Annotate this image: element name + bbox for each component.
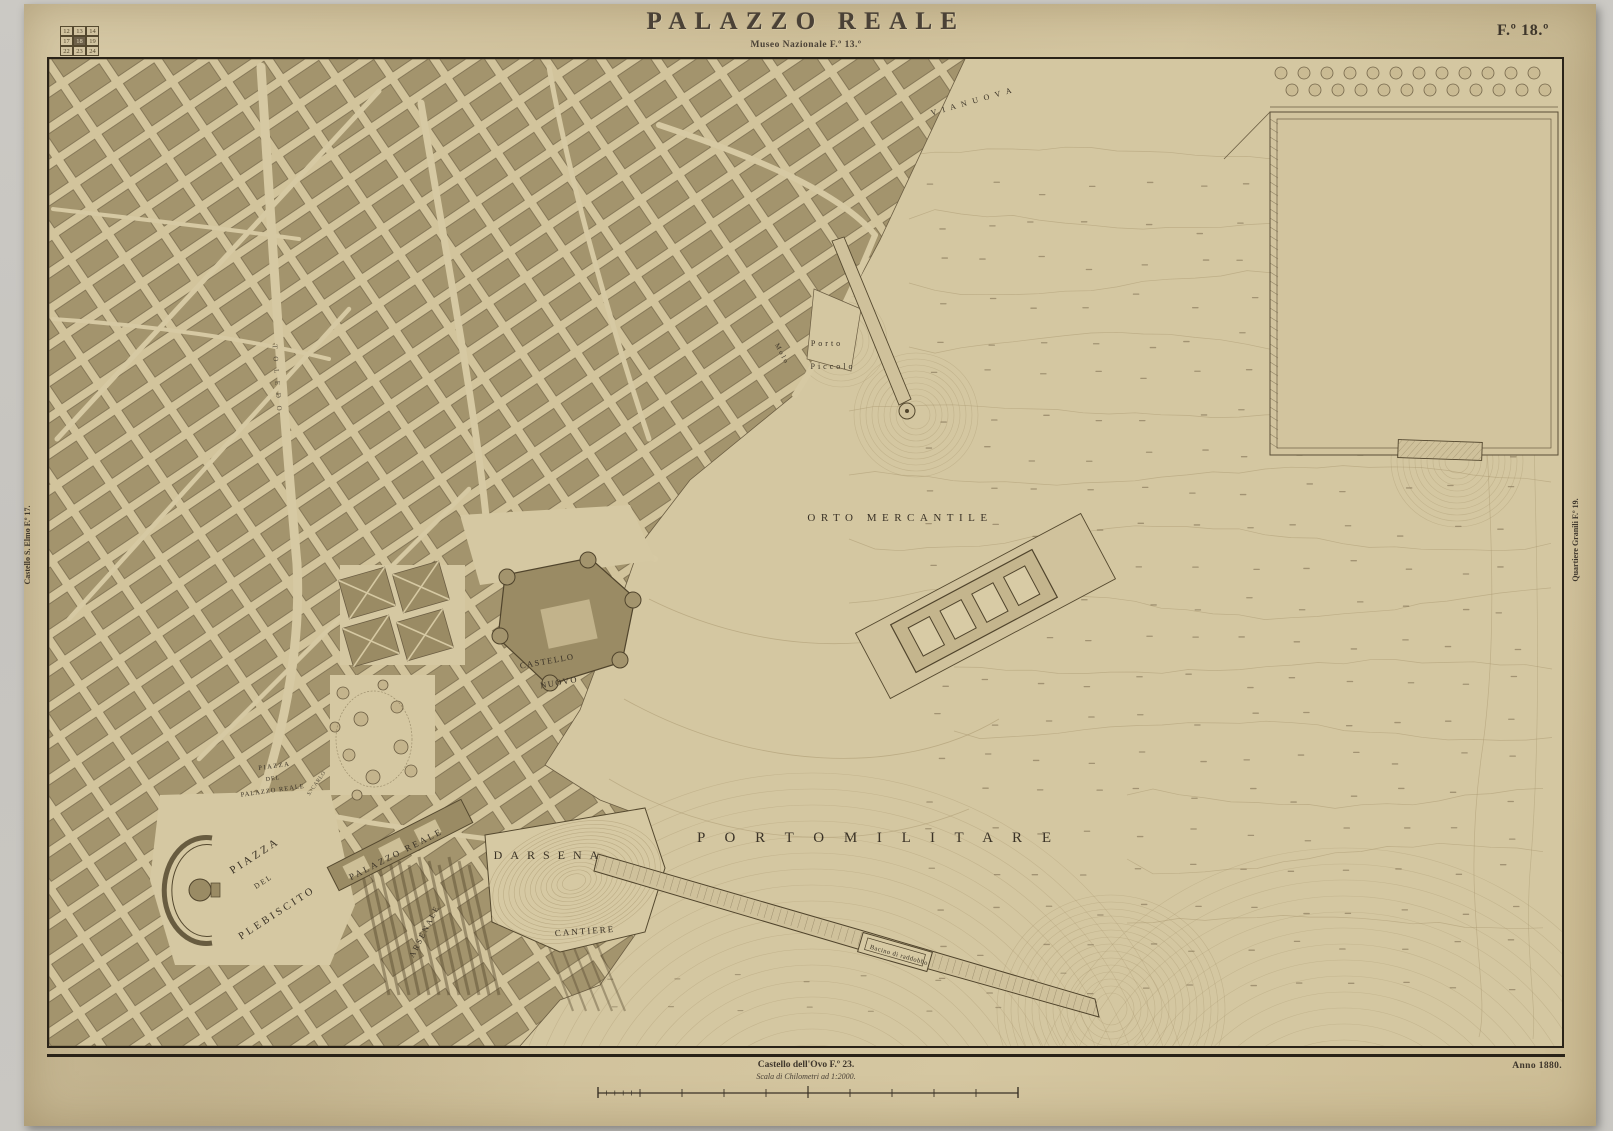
year-note: Anno 1880. xyxy=(1442,1061,1562,1071)
sheet-index-grid: 12 13 14 17 18 19 22 23 24 xyxy=(60,26,99,56)
granili-quarter xyxy=(1224,67,1558,455)
sheet-number: F.º 18.º xyxy=(1478,22,1568,40)
label-orto-mercantile: ORTO MERCANTILE xyxy=(807,512,992,524)
adjacent-sheet-top: Museo Nazionale F.º 13.º xyxy=(606,40,1006,50)
san-francesco-church xyxy=(189,879,211,901)
right-jetty xyxy=(1398,440,1483,461)
index-cell: 12 xyxy=(60,26,73,36)
adjacent-sheet-bottom: Castello dell'Ovo F.º 23. xyxy=(606,1060,1006,1070)
index-cell: 23 xyxy=(73,46,86,56)
index-cell: 19 xyxy=(86,36,99,46)
index-cell: 17 xyxy=(60,36,73,46)
scale-bar xyxy=(596,1085,1020,1099)
scanned-map-photo: 12 13 14 17 18 19 22 23 24 PALAZZO REALE… xyxy=(0,0,1613,1131)
adjacent-sheet-right: Quartiere Granili F.º 19. xyxy=(1571,455,1585,625)
index-cell: 14 xyxy=(86,26,99,36)
index-cell: 22 xyxy=(60,46,73,56)
label-piccolo: Piccolo xyxy=(811,362,856,371)
map-title: PALAZZO REALE xyxy=(606,8,1006,36)
map-drawing: ORTO MERCANTILE P O R T O M I L I T A R … xyxy=(49,59,1562,1046)
label-darsena: DARSENA xyxy=(494,848,607,862)
index-cell-current: 18 xyxy=(73,36,86,46)
label-porto: Porto xyxy=(811,339,843,348)
label-porto-militare: P O R T O M I L I T A R E xyxy=(697,830,1059,846)
map-frame: ORTO MERCANTILE P O R T O M I L I T A R … xyxy=(47,57,1564,1048)
adjacent-sheet-left: Castello S. Elmo F.º 17. xyxy=(23,460,37,630)
piazza-plebiscito-area xyxy=(150,790,355,965)
index-cell: 13 xyxy=(73,26,86,36)
bottom-rule xyxy=(47,1054,1565,1057)
scale-note: Scala di Chilometri ad 1:2000. xyxy=(606,1072,1006,1081)
index-cell: 24 xyxy=(86,46,99,56)
